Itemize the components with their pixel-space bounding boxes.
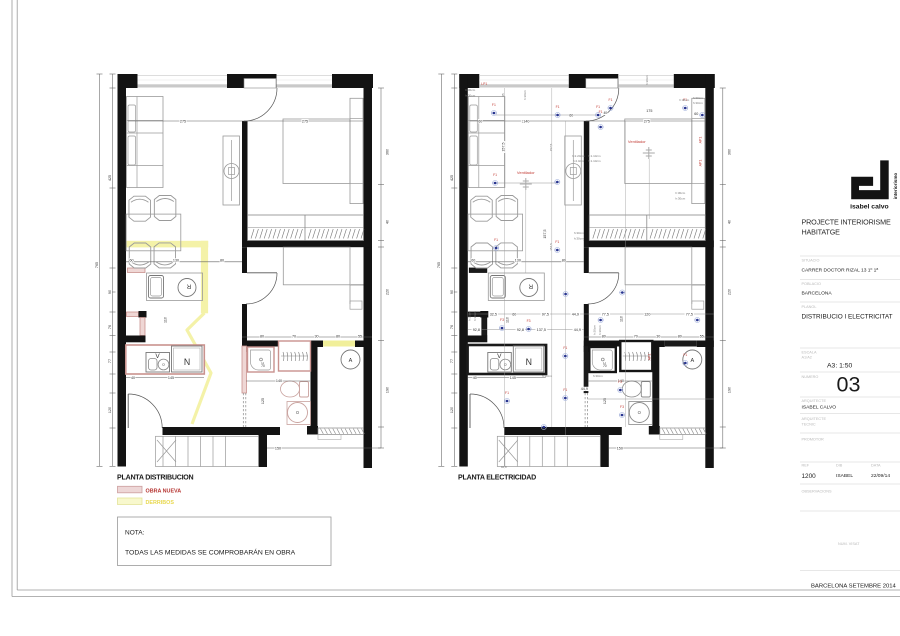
svg-text:h:30cm: h:30cm: [574, 237, 584, 241]
svg-text:150: 150: [275, 446, 281, 450]
svg-text:Ventilador: Ventilador: [628, 139, 646, 144]
svg-text:CARRER DOCTOR RIZAL 13 1º 1ª: CARRER DOCTOR RIZAL 13 1º 1ª: [802, 268, 879, 274]
svg-text:140: 140: [276, 379, 282, 383]
svg-text:40: 40: [603, 111, 607, 115]
svg-text:44,9: 44,9: [574, 328, 581, 332]
svg-text:F3: F3: [527, 319, 531, 323]
svg-text:90: 90: [450, 290, 454, 294]
svg-text:V: V: [155, 353, 160, 360]
svg-text:92,8: 92,8: [501, 465, 507, 469]
svg-text:A: A: [690, 358, 694, 364]
svg-text:157,5: 157,5: [501, 142, 505, 151]
svg-text:AP1: AP1: [647, 354, 651, 361]
svg-text:LP1: LP1: [481, 82, 487, 86]
svg-text:POBLACIO: POBLACIO: [802, 282, 821, 286]
svg-text:765: 765: [95, 262, 99, 268]
svg-text:Ventilador: Ventilador: [517, 170, 535, 175]
svg-text:F1: F1: [563, 388, 567, 392]
svg-text:40: 40: [386, 220, 390, 224]
svg-text:F1: F1: [609, 98, 613, 102]
svg-text:190: 190: [386, 387, 390, 393]
svg-text:REF: REF: [802, 464, 810, 468]
svg-text:76: 76: [450, 325, 454, 329]
svg-text:77,5: 77,5: [602, 312, 609, 316]
svg-text:110: 110: [164, 317, 168, 323]
svg-text:h:30cm: h:30cm: [473, 311, 477, 321]
svg-text:F1: F1: [563, 346, 567, 350]
svg-text:120: 120: [450, 407, 454, 413]
svg-text:60: 60: [512, 312, 516, 316]
svg-text:157,5: 157,5: [549, 243, 553, 251]
svg-text:55: 55: [700, 334, 704, 338]
svg-text:22/09/14: 22/09/14: [871, 473, 890, 479]
svg-text:32,5: 32,5: [490, 312, 497, 316]
svg-text:h:30cm: h:30cm: [574, 231, 584, 235]
svg-text:80: 80: [336, 334, 340, 338]
svg-text:ISABEL: ISABEL: [836, 473, 853, 479]
svg-text:AP1: AP1: [698, 160, 702, 167]
svg-text:N: N: [184, 357, 190, 367]
svg-text:175: 175: [646, 109, 652, 113]
svg-text:h:30cm: h:30cm: [542, 374, 552, 378]
svg-text:NUMERO: NUMERO: [802, 375, 819, 379]
svg-text:60: 60: [129, 259, 133, 263]
svg-text:h:30cm: h:30cm: [593, 374, 603, 378]
svg-text:PLANTA DISTRIBUCION: PLANTA DISTRIBUCION: [117, 473, 194, 481]
svg-text:ARQUITECTE: ARQUITECTE: [802, 417, 827, 421]
svg-text:TODAS LAS MEDIDAS SE COMPROBAR: TODAS LAS MEDIDAS SE COMPROBARÁN EN OBRA: [125, 548, 296, 557]
svg-text:F1: F1: [596, 105, 600, 109]
svg-text:F3: F3: [620, 405, 624, 409]
svg-text:isabel calvo: isabel calvo: [850, 204, 889, 211]
svg-text:157,5: 157,5: [549, 143, 553, 151]
svg-text:h:30cm: h:30cm: [523, 90, 527, 100]
svg-text:A1/A2: A1/A2: [802, 356, 812, 360]
svg-text:110: 110: [619, 316, 623, 322]
svg-text:360: 360: [727, 149, 731, 155]
svg-text:120: 120: [108, 407, 112, 413]
svg-text:F1: F1: [505, 391, 509, 395]
svg-text:F1: F1: [555, 240, 559, 244]
svg-text:h:30cm: h:30cm: [467, 311, 471, 321]
svg-text:h:30cm: h:30cm: [693, 101, 703, 105]
svg-text:360: 360: [386, 149, 390, 155]
svg-text:h:30cm: h:30cm: [592, 325, 596, 335]
svg-text:220: 220: [386, 289, 390, 295]
svg-text:F2: F2: [618, 380, 622, 384]
svg-text:76: 76: [108, 325, 112, 329]
svg-text:h:2.20cm: h:2.20cm: [572, 154, 585, 158]
svg-text:137,5: 137,5: [537, 328, 546, 332]
svg-text:h:30cm: h:30cm: [675, 197, 685, 201]
svg-text:77: 77: [450, 359, 454, 363]
svg-text:h:1.10cm: h:1.10cm: [588, 159, 601, 163]
svg-text:h:30cm: h:30cm: [645, 75, 649, 85]
svg-text:A: A: [349, 358, 353, 364]
svg-text:R: R: [528, 283, 533, 289]
svg-text:1200: 1200: [802, 473, 817, 480]
svg-text:h:1.10cm: h:1.10cm: [588, 154, 601, 158]
svg-text:30: 30: [314, 334, 318, 338]
svg-text:125: 125: [261, 398, 265, 404]
svg-text:h:30cm: h:30cm: [465, 88, 475, 92]
svg-text:275: 275: [180, 119, 186, 123]
svg-text:HABITATGE: HABITATGE: [802, 228, 841, 237]
svg-text:BARCELONA: BARCELONA: [802, 291, 833, 297]
svg-text:BARCELONA SETEMBRE 2014: BARCELONA SETEMBRE 2014: [811, 584, 897, 590]
svg-text:h:30cm: h:30cm: [598, 325, 602, 335]
svg-text:77: 77: [108, 359, 112, 363]
svg-text:F1: F1: [683, 353, 687, 357]
svg-text:OBRA NUEVA: OBRA NUEVA: [146, 488, 182, 494]
svg-text:130: 130: [173, 259, 179, 263]
svg-text:h:30cm: h:30cm: [693, 96, 703, 100]
svg-text:PLANOL: PLANOL: [802, 305, 817, 309]
svg-text:DIB: DIB: [836, 464, 843, 468]
svg-text:F1: F1: [492, 103, 496, 107]
svg-text:F3: F3: [500, 318, 504, 322]
svg-text:interiorismo: interiorismo: [893, 173, 898, 200]
svg-text:120: 120: [644, 312, 650, 316]
svg-text:110: 110: [505, 317, 509, 323]
svg-text:44,9: 44,9: [572, 312, 579, 316]
svg-text:PROJECTE INTERIORISME: PROJECTE INTERIORISME: [802, 218, 891, 227]
svg-text:40: 40: [727, 220, 731, 224]
svg-text:157,5: 157,5: [543, 229, 547, 238]
svg-text:V: V: [497, 353, 502, 360]
svg-text:77,5: 77,5: [686, 312, 693, 316]
svg-text:70: 70: [634, 334, 638, 338]
svg-text:DISTRIBUCIO I ELECTRICITAT: DISTRIBUCIO I ELECTRICITAT: [802, 314, 893, 321]
svg-text:60: 60: [569, 113, 573, 117]
svg-text:150: 150: [617, 446, 623, 450]
svg-text:A3: 1:50: A3: 1:50: [827, 363, 853, 370]
svg-text:F1: F1: [599, 110, 603, 114]
svg-text:275: 275: [644, 119, 650, 123]
svg-text:80: 80: [602, 334, 606, 338]
svg-text:R: R: [186, 283, 191, 289]
svg-text:DATA: DATA: [871, 464, 881, 468]
svg-text:97,5: 97,5: [542, 312, 549, 316]
svg-text:30: 30: [656, 334, 660, 338]
svg-text:h:2.0cm: h:2.0cm: [573, 159, 584, 163]
svg-text:60: 60: [471, 259, 475, 263]
svg-text:130: 130: [515, 259, 521, 263]
svg-text:h:30cm: h:30cm: [679, 98, 689, 102]
svg-text:44,9: 44,9: [581, 387, 588, 391]
svg-text:F1: F1: [493, 173, 497, 177]
svg-text:145: 145: [168, 376, 174, 380]
svg-text:55: 55: [358, 334, 362, 338]
svg-text:NOTA:: NOTA:: [125, 530, 145, 537]
svg-text:TECNIC: TECNIC: [802, 423, 816, 427]
svg-text:190: 190: [727, 387, 731, 393]
svg-text:DERRIBOS: DERRIBOS: [146, 500, 175, 506]
svg-text:425: 425: [450, 175, 454, 181]
svg-text:ARQUITECTE: ARQUITECTE: [802, 399, 827, 403]
svg-text:40: 40: [131, 376, 135, 380]
svg-text:PLANTA ELECTRICIDAD: PLANTA ELECTRICIDAD: [458, 473, 536, 481]
svg-text:SITUACIO: SITUACIO: [802, 259, 820, 263]
svg-text:145: 145: [510, 376, 516, 380]
svg-text:425: 425: [108, 175, 112, 181]
svg-text:220: 220: [727, 289, 731, 295]
svg-text:140: 140: [523, 119, 529, 123]
svg-text:ESCALA: ESCALA: [802, 351, 817, 355]
svg-text:765: 765: [437, 262, 441, 268]
svg-text:OBSERVACIONS: OBSERVACIONS: [802, 490, 832, 494]
svg-text:03: 03: [837, 373, 861, 397]
svg-text:80: 80: [220, 259, 224, 263]
svg-text:70: 70: [292, 334, 296, 338]
svg-text:90: 90: [108, 290, 112, 294]
svg-text:F1: F1: [556, 105, 560, 109]
svg-text:h:30cm: h:30cm: [675, 191, 685, 195]
svg-text:60: 60: [478, 119, 482, 123]
svg-text:275: 275: [302, 119, 308, 123]
svg-text:NUM. VISAT: NUM. VISAT: [838, 542, 860, 546]
svg-text:80: 80: [678, 334, 682, 338]
svg-text:ISABEL CALVO: ISABEL CALVO: [802, 405, 837, 411]
svg-text:PROMOTOR: PROMOTOR: [802, 438, 825, 442]
svg-text:70: 70: [261, 364, 265, 368]
svg-text:92,8: 92,8: [517, 328, 524, 332]
svg-text:AP1: AP1: [698, 137, 702, 144]
svg-text:80: 80: [260, 334, 264, 338]
svg-text:92,8: 92,8: [473, 328, 480, 332]
svg-text:65: 65: [501, 93, 505, 97]
svg-text:F1: F1: [494, 238, 498, 242]
svg-text:70: 70: [603, 364, 607, 368]
svg-text:N: N: [526, 357, 532, 367]
svg-text:60: 60: [694, 112, 698, 116]
svg-text:40: 40: [473, 376, 477, 380]
svg-text:h:30cm: h:30cm: [465, 94, 475, 98]
